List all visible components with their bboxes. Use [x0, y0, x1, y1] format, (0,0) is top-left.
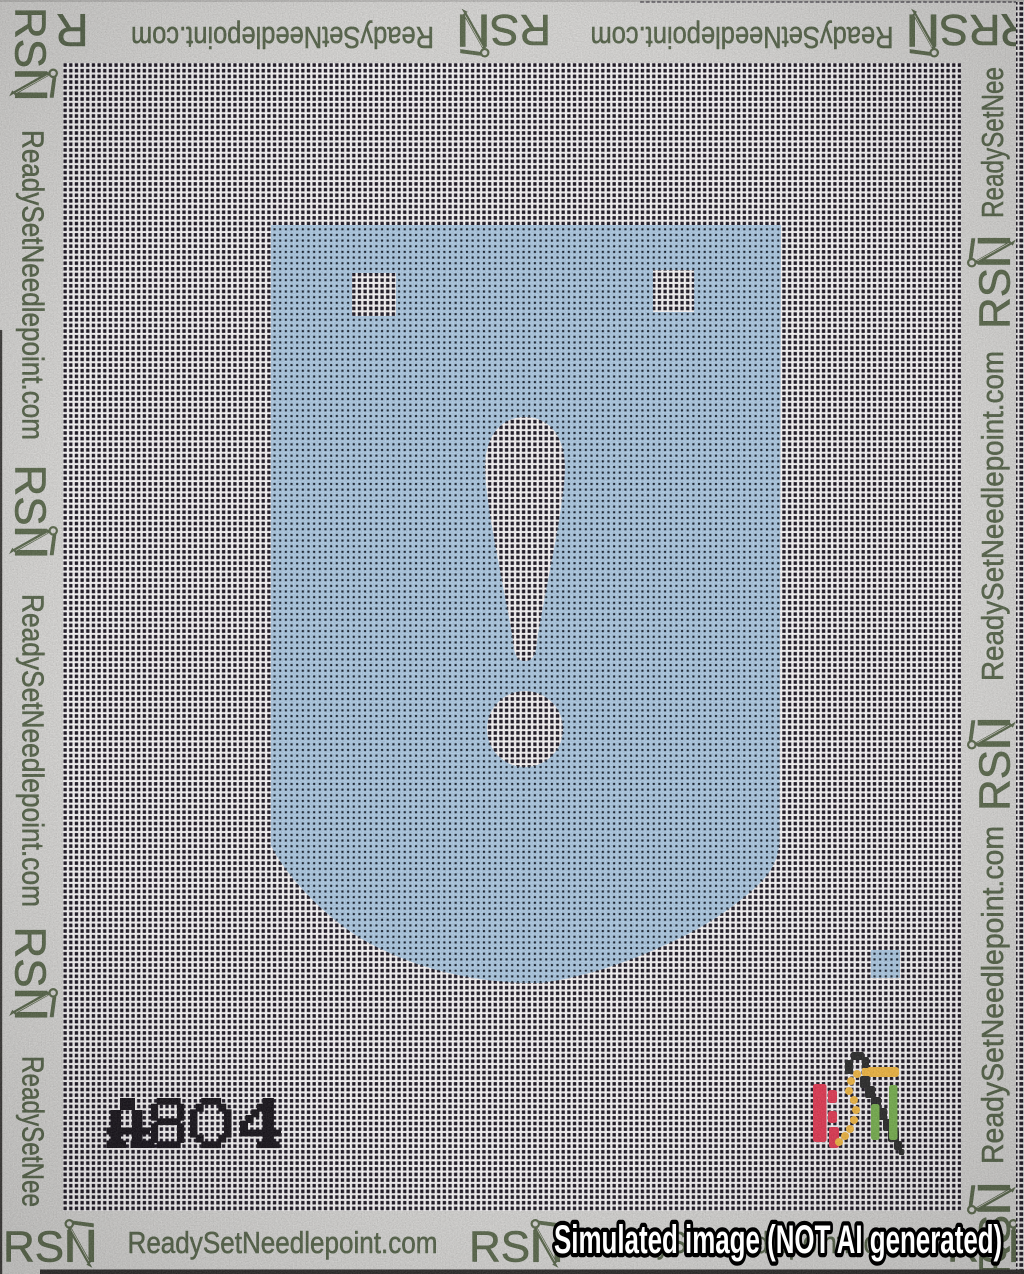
svg-text:Simulated image (NOT AI genera: Simulated image (NOT AI generated) [554, 1217, 1002, 1262]
